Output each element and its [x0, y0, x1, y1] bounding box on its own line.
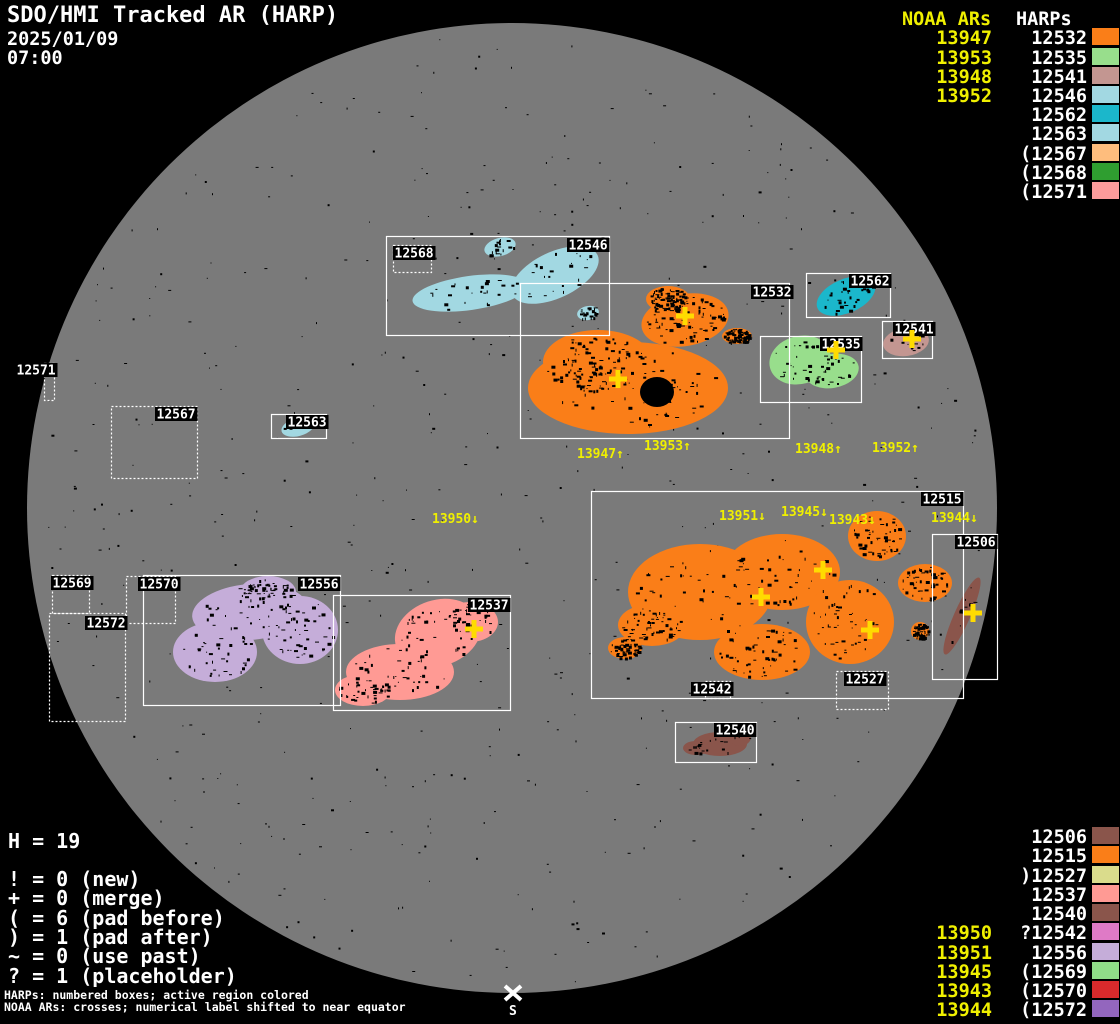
harp-color-swatch: [1092, 885, 1119, 902]
noaa-ar-number: 13947: [899, 30, 992, 49]
app-title: SDO/HMI Tracked AR (HARP): [7, 5, 338, 27]
harp-color-swatch: [1092, 1000, 1119, 1017]
harp-box-label-12542: 12542: [693, 683, 732, 698]
harp-box-label-12562: 12562: [851, 275, 890, 290]
harp-color-swatch: [1092, 86, 1119, 103]
harp-box-label-12571: 12571: [17, 364, 56, 379]
harp-number: (12570: [999, 983, 1087, 1002]
harp-color-swatch: [1092, 866, 1119, 883]
frame-date: 2025/01/09: [7, 31, 118, 50]
harp-box-label-12537: 12537: [470, 599, 509, 614]
harp-box-label-12556: 12556: [300, 578, 339, 593]
harp-box-label-12532: 12532: [753, 286, 792, 301]
noaa-shifted-label: 13953↑: [644, 439, 691, 454]
harp-number: )12527: [999, 868, 1087, 887]
harp-box-label-12570: 12570: [140, 578, 179, 593]
harp-color-swatch: [1092, 105, 1119, 122]
harp-number: (12567: [999, 146, 1087, 165]
noaa-ar-number: 13953: [899, 50, 992, 69]
sdo-hmi-harp-frame: 1254612568125321256212541125351256312571…: [0, 0, 1120, 1024]
noaa-ar-number: 13952: [899, 88, 992, 107]
noaa-ars-header: NOAA ARs: [902, 11, 991, 30]
harp-number: (12571: [999, 184, 1087, 203]
harp-box-label-12515: 12515: [923, 493, 962, 508]
harp-box-label-12572: 12572: [87, 617, 126, 632]
noaa-shifted-label: 13950↓: [432, 512, 479, 527]
flag-line: ? = 1 (placeholder): [8, 966, 237, 986]
harp-color-swatch: [1092, 846, 1119, 863]
harp-number: 12515: [999, 848, 1087, 867]
south-marker-label: S: [509, 1004, 517, 1019]
noaa-shifted-label: 13951↓: [719, 509, 766, 524]
harp-number: 12506: [999, 829, 1087, 848]
harp-number: ?12542: [999, 925, 1087, 944]
harp-color-swatch: [1092, 943, 1119, 960]
harp-color-swatch: [1092, 182, 1119, 199]
harp-color-swatch: [1092, 28, 1119, 45]
harp-box-label-12540: 12540: [716, 724, 755, 739]
frame-time: 07:00: [7, 50, 63, 69]
noaa-shifted-label: 13944↓: [931, 511, 978, 526]
harp-color-swatch: [1092, 827, 1119, 844]
noaa-ar-number: 13948: [899, 69, 992, 88]
harp-number: 12540: [999, 906, 1087, 925]
harp-box-label-12546: 12546: [569, 239, 608, 254]
harp-box-label-12567: 12567: [157, 408, 196, 423]
noaa-shifted-label: 13947↑: [577, 447, 624, 462]
harp-number: (12572: [999, 1002, 1087, 1021]
noaa-ar-number: 13944: [899, 1002, 992, 1021]
harp-box-label-12563: 12563: [288, 416, 327, 431]
harp-number: (12568: [999, 165, 1087, 184]
harp-color-swatch: [1092, 904, 1119, 921]
harp-color-swatch: [1092, 67, 1119, 84]
solar-disk-scene: 1254612568125321256212541125351256312571…: [0, 0, 1120, 1024]
harp-color-swatch: [1092, 923, 1119, 940]
harp-color-swatch: [1092, 48, 1119, 65]
harps-header: HARPs: [1016, 11, 1072, 30]
noaa-ar-number: 13945: [899, 964, 992, 983]
harp-color-swatch: [1092, 981, 1119, 998]
noaa-shifted-label: 13943↓: [829, 513, 876, 528]
harp-box-label-12568: 12568: [395, 247, 434, 262]
harp-number: 12537: [999, 887, 1087, 906]
harp-count: H = 19: [8, 831, 80, 851]
harp-number: (12569: [999, 964, 1087, 983]
harp-number: 12546: [999, 88, 1087, 107]
noaa-ar-number: 13950: [899, 925, 992, 944]
sun-disk: [27, 23, 997, 993]
noaa-shifted-label: 13945↓: [781, 505, 828, 520]
footnote-noaa: NOAA ARs: crosses; numerical label shift…: [4, 1002, 406, 1014]
harp-number: 12535: [999, 50, 1087, 69]
harp-color-swatch: [1092, 144, 1119, 161]
noaa-shifted-label: 13952↑: [872, 441, 919, 456]
harp-box-label-12569: 12569: [53, 577, 92, 592]
harp-number: 12563: [999, 126, 1087, 145]
noaa-shifted-label: 13948↑: [795, 442, 842, 457]
harp-number: 12556: [999, 945, 1087, 964]
harp-box-label-12506: 12506: [957, 536, 996, 551]
noaa-ar-number: 13951: [899, 945, 992, 964]
harp-color-swatch: [1092, 124, 1119, 141]
harp-number: 12541: [999, 69, 1087, 88]
harp-color-swatch: [1092, 163, 1119, 180]
harp-box-label-12527: 12527: [846, 673, 885, 688]
harp-color-swatch: [1092, 962, 1119, 979]
sunspot: [640, 377, 674, 407]
noaa-ar-number: 13943: [899, 983, 992, 1002]
harp-number: 12562: [999, 107, 1087, 126]
harp-number: 12532: [999, 30, 1087, 49]
